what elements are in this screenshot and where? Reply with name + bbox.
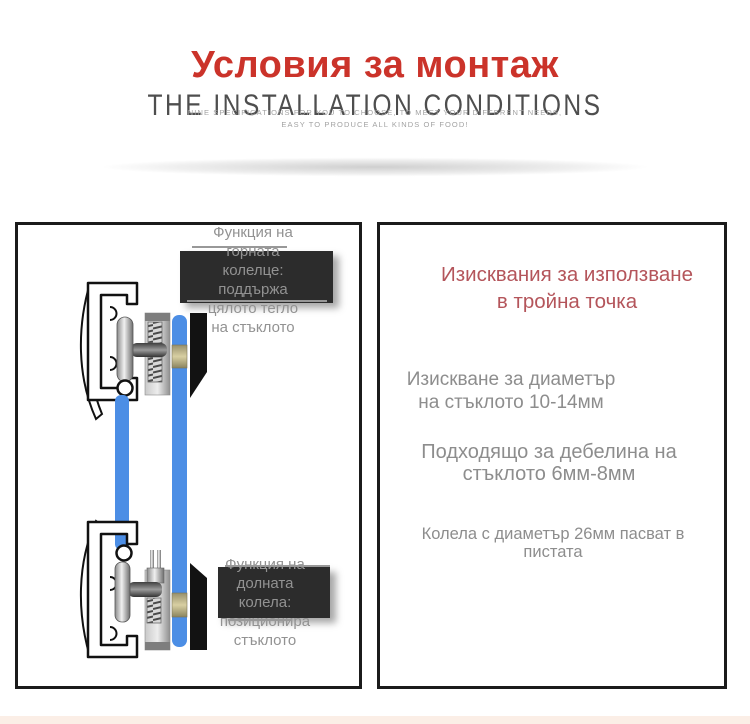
spec-item-wheels: Колела с диаметър 26мм пасват в пистата (381, 525, 725, 561)
spec-line: Колела с диаметър 26мм пасват в (381, 525, 725, 543)
axle-bolt (128, 582, 162, 597)
profile-notch (110, 357, 117, 370)
gasket-top (172, 345, 187, 368)
label-line: позиционира (185, 612, 345, 631)
diagram-canvas: Функция на горната колелце: поддържа цял… (18, 225, 359, 686)
roller-wheel (117, 317, 133, 382)
specs-title-line: в тройна точка (395, 288, 739, 315)
bottom-roller-label: Функция на долната колела: позиционира с… (185, 555, 345, 650)
profile-notch (110, 307, 117, 320)
diagram-panel: Функция на горната колелце: поддържа цял… (15, 222, 362, 689)
spec-line: Подходящо за дебелина на (377, 441, 721, 463)
label-line: поддържа (168, 280, 338, 299)
spring (147, 598, 161, 623)
profile-notch (110, 627, 117, 640)
specs-panel: Изисквания за използване в тройна точка … (377, 222, 727, 689)
roller-wheel (115, 562, 130, 622)
spec-line: на стъклото 10-14мм (339, 391, 683, 414)
label-line: на стъклото (168, 318, 338, 337)
ball-bearing (117, 546, 132, 561)
spring (148, 322, 162, 343)
specs-title-line: Изисквания за използване (395, 261, 739, 288)
leader-line (228, 619, 292, 621)
bolt-body (147, 568, 164, 583)
page-title: Условия за монтаж (0, 44, 750, 87)
tagline-line-1: NINE SPECIFICATIONS FOR YOU TO CHOOSE, T… (0, 107, 750, 119)
mount-plate-cap (145, 313, 170, 321)
ball-bearing (118, 381, 133, 396)
spec-item-thickness: Подходящо за дебелина на стъклото 6мм-8м… (377, 441, 721, 485)
top-roller-label: Функция на горната колелце: поддържа цял… (168, 223, 338, 337)
bottom-strip (0, 716, 750, 724)
label-line: колелце: (168, 261, 338, 280)
specs-title: Изисквания за използване в тройна точка (395, 261, 739, 315)
spec-line: стъклото 6мм-8мм (377, 463, 721, 485)
label-line: Функция на (168, 223, 338, 242)
spec-item-diameter: Изискване за диаметър на стъклото 10-14м… (339, 368, 683, 414)
spec-line: пистата (381, 543, 725, 561)
axle-bolt (131, 343, 167, 357)
label-line: горната (168, 242, 338, 261)
spring (148, 357, 162, 382)
tagline-line-2: EASY TO PRODUCE ALL KINDS OF FOOD! (0, 119, 750, 131)
label-line: стъклото (185, 631, 345, 650)
label-line: долната (185, 574, 345, 593)
header-tagline: NINE SPECIFICATIONS FOR YOU TO CHOOSE, T… (0, 107, 750, 131)
leader-line (187, 300, 327, 302)
spec-line: Изискване за диаметър (339, 368, 683, 391)
leader-line (225, 565, 330, 567)
section-divider-shadow (0, 155, 750, 179)
label-line: колела: (185, 593, 345, 612)
mount-plate-cap (145, 642, 170, 650)
leader-line (192, 246, 287, 248)
